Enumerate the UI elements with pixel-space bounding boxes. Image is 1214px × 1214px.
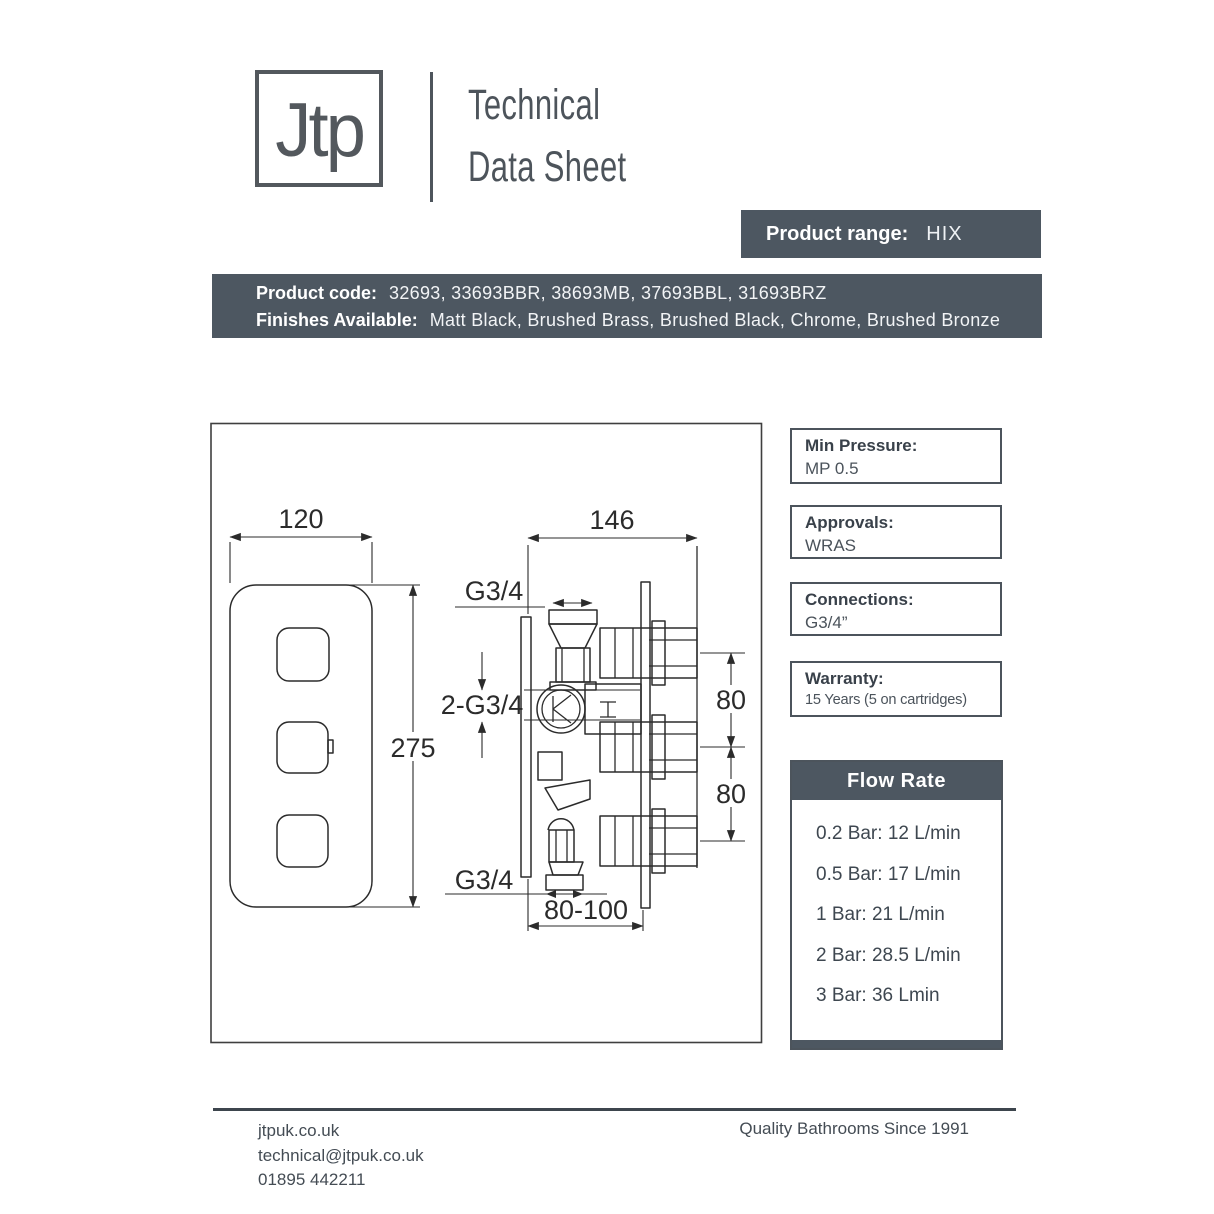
approvals-label: Approvals: xyxy=(805,513,990,533)
flow-rate-row: 0.2 Bar: 12 L/min xyxy=(816,814,1001,855)
spec-box-warranty: Warranty: 15 Years (5 on cartridges) xyxy=(790,661,1002,717)
product-code-label: Product code: xyxy=(256,283,377,303)
side-view xyxy=(521,546,697,908)
footer-email: technical@jtpuk.co.uk xyxy=(258,1144,424,1169)
dim-port-top-label: G3/4 xyxy=(465,576,524,606)
flow-rate-row: 0.5 Bar: 17 L/min xyxy=(816,855,1001,896)
footer-contact: jtpuk.co.uk technical@jtpuk.co.uk 01895 … xyxy=(258,1119,424,1193)
dim-ports-mid-label: 2-G3/4 xyxy=(441,690,524,720)
finishes-label: Finishes Available: xyxy=(256,310,418,330)
flow-rate-box: Flow Rate 0.2 Bar: 12 L/min 0.5 Bar: 17 … xyxy=(790,760,1003,1050)
min-pressure-value: MP 0.5 xyxy=(805,459,990,479)
dim-spacing-bottom-label: 80 xyxy=(716,779,746,809)
product-code-value: 32693, 33693BBR, 38693MB, 37693BBL, 3169… xyxy=(389,283,827,303)
dim-depth-label: 146 xyxy=(589,505,634,535)
footer-website: jtpuk.co.uk xyxy=(258,1119,424,1144)
product-code-bar: Product code:32693, 33693BBR, 38693MB, 3… xyxy=(212,274,1042,338)
front-view-dimensions xyxy=(230,537,420,907)
spec-box-min-pressure: Min Pressure: MP 0.5 xyxy=(790,428,1002,484)
finishes-value: Matt Black, Brushed Brass, Brushed Black… xyxy=(430,310,1000,330)
jtp-logo: Jtp xyxy=(255,70,383,187)
technical-drawing: 120 275 xyxy=(210,422,763,1044)
front-view xyxy=(230,585,372,907)
connections-label: Connections: xyxy=(805,590,990,610)
spec-box-approvals: Approvals: WRAS xyxy=(790,505,1002,559)
warranty-value: 15 Years (5 on cartridges) xyxy=(805,692,990,708)
footer-tagline: Quality Bathrooms Since 1991 xyxy=(609,1119,969,1139)
warranty-label: Warranty: xyxy=(805,669,990,689)
flow-rate-row: 2 Bar: 28.5 L/min xyxy=(816,936,1001,977)
jtp-logo-text: Jtp xyxy=(275,87,363,174)
document-title-line1: Technical xyxy=(468,74,627,136)
document-title: Technical Data Sheet xyxy=(468,74,627,198)
product-range-bar: Product range: HIX xyxy=(741,210,1041,258)
product-range-label: Product range: xyxy=(766,223,908,246)
product-code-row: Product code:32693, 33693BBR, 38693MB, 3… xyxy=(256,280,1042,307)
finishes-row: Finishes Available:Matt Black, Brushed B… xyxy=(256,307,1042,334)
flow-rate-body: 0.2 Bar: 12 L/min 0.5 Bar: 17 L/min 1 Ba… xyxy=(792,800,1001,1017)
dim-mount-depth-label: 80-100 xyxy=(544,895,628,925)
approvals-value: WRAS xyxy=(805,536,990,556)
document-title-line2: Data Sheet xyxy=(468,136,627,198)
spec-box-connections: Connections: G3/4” xyxy=(790,582,1002,636)
dim-spacing-top-label: 80 xyxy=(716,685,746,715)
brand-divider xyxy=(430,72,433,202)
footer-phone: 01895 442211 xyxy=(258,1168,424,1193)
flow-rate-footer-bar xyxy=(792,1040,1001,1048)
dim-port-bottom-label: G3/4 xyxy=(455,865,514,895)
footer-divider xyxy=(213,1108,1016,1111)
flow-rate-row: 1 Bar: 21 L/min xyxy=(816,895,1001,936)
flow-rate-row: 3 Bar: 36 Lmin xyxy=(816,976,1001,1017)
flow-rate-title: Flow Rate xyxy=(792,762,1001,800)
connections-value: G3/4” xyxy=(805,613,990,633)
dim-width-label: 120 xyxy=(278,504,323,534)
min-pressure-label: Min Pressure: xyxy=(805,436,990,456)
datasheet-page: Jtp Technical Data Sheet Product range: … xyxy=(0,0,1214,1214)
dim-height-label: 275 xyxy=(390,733,435,763)
product-range-value: HIX xyxy=(926,223,962,246)
